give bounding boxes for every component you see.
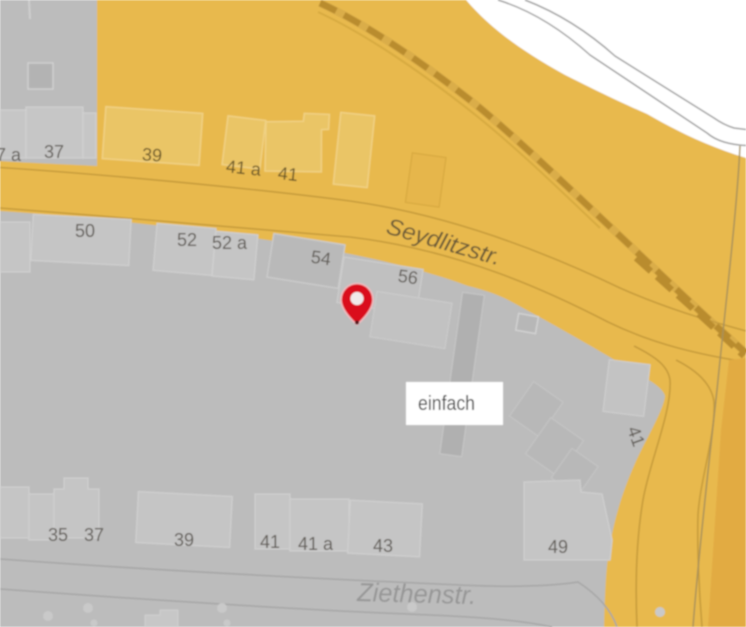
svg-text:52: 52 (177, 230, 197, 250)
svg-text:7 a: 7 a (0, 145, 22, 165)
svg-text:35: 35 (48, 525, 68, 545)
svg-text:41 a: 41 a (298, 534, 334, 554)
svg-text:37: 37 (44, 142, 64, 162)
svg-text:52 a: 52 a (212, 233, 248, 253)
svg-text:41: 41 (260, 532, 280, 552)
svg-text:37: 37 (84, 525, 104, 545)
svg-text:einfach: einfach (418, 393, 475, 415)
svg-text:Ziethenstr.: Ziethenstr. (356, 577, 477, 610)
svg-text:54: 54 (310, 247, 333, 270)
svg-text:41 a: 41 a (225, 156, 263, 180)
svg-text:56: 56 (397, 266, 420, 289)
svg-text:39: 39 (174, 530, 194, 550)
svg-text:39: 39 (141, 144, 162, 165)
svg-text:50: 50 (75, 221, 95, 241)
svg-text:49: 49 (548, 537, 568, 557)
svg-text:43: 43 (373, 536, 393, 556)
svg-text:41: 41 (277, 163, 299, 185)
